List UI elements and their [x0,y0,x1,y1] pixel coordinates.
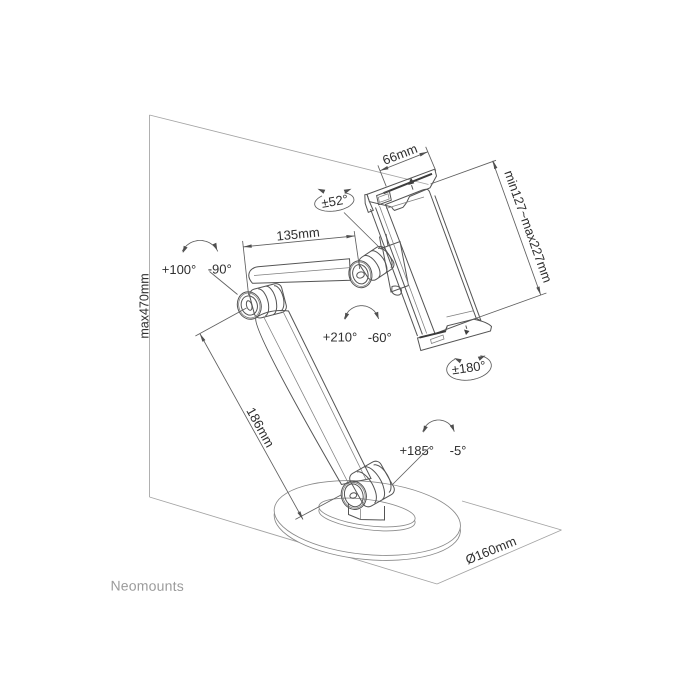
svg-text:-90°: -90° [208,261,232,276]
svg-text:135mm: 135mm [276,224,321,243]
svg-text:max470mm: max470mm [138,273,152,338]
svg-text:+100°: +100° [162,262,197,277]
svg-text:+185°: +185° [399,443,434,458]
svg-text:66mm: 66mm [380,141,419,168]
svg-text:-60°: -60° [368,330,392,345]
svg-text:-5°: -5° [450,443,467,458]
svg-text:±180°: ±180° [451,358,487,378]
svg-text:min127~max227mm: min127~max227mm [501,168,555,284]
svg-text:Neomounts: Neomounts [110,578,183,594]
svg-text:+210°: +210° [323,329,358,344]
svg-text:Ø160mm: Ø160mm [463,533,518,567]
